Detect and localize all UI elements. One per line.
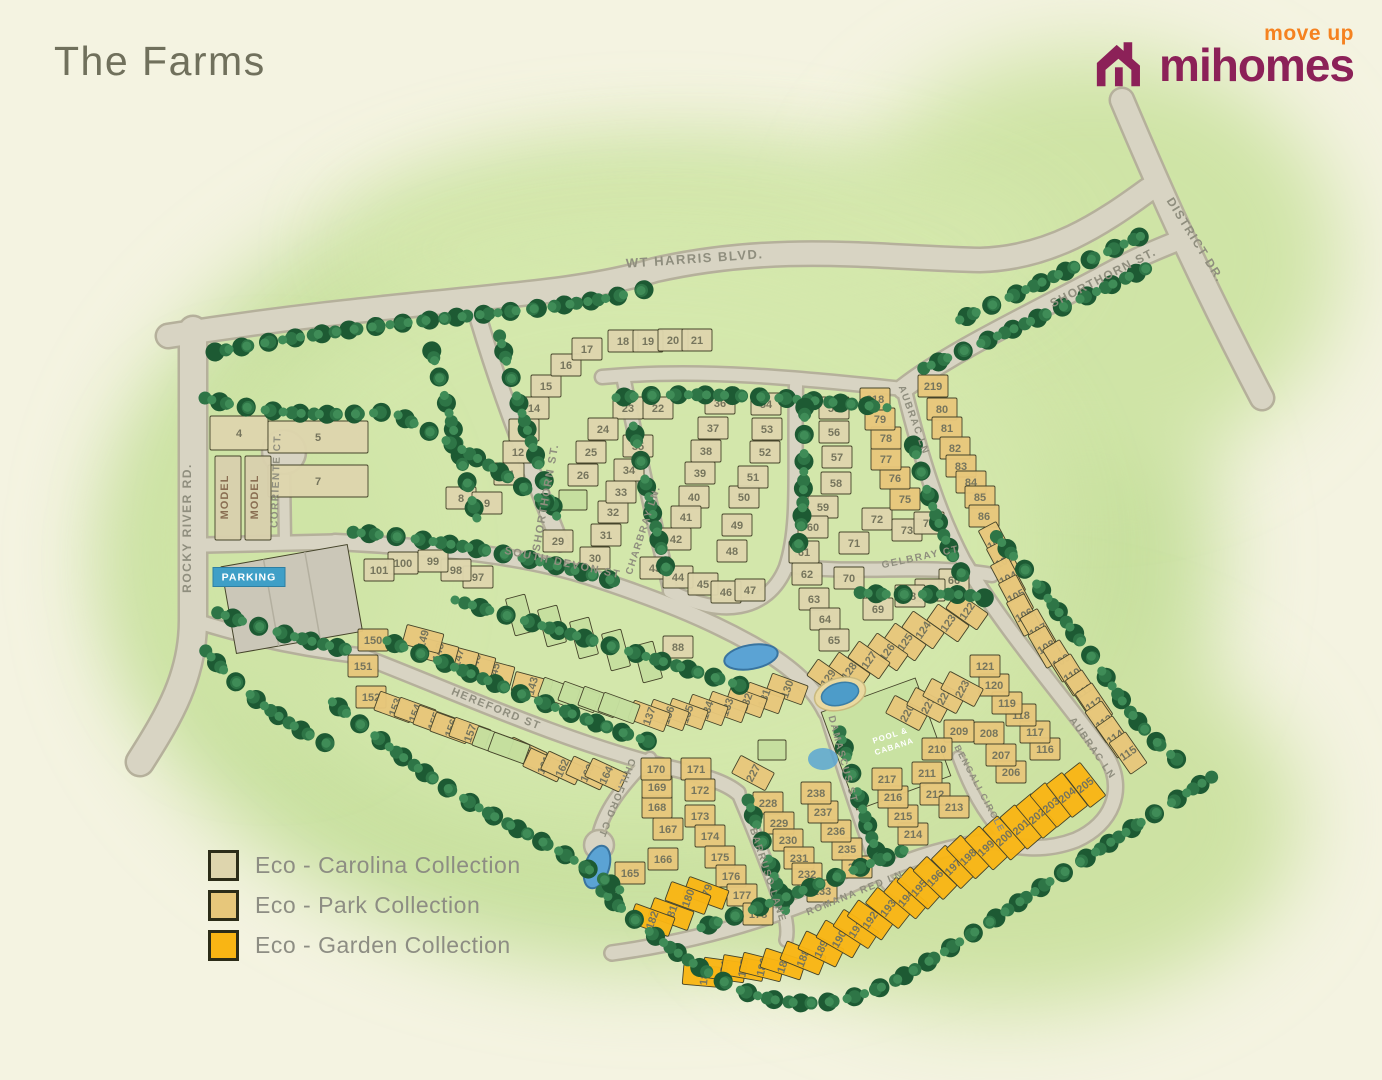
lot-number: 206 <box>1002 767 1020 779</box>
lot-24: 24 <box>588 418 618 440</box>
lot-number: 44 <box>672 572 685 584</box>
lot-number: 117 <box>1026 727 1044 739</box>
lot-number: 25 <box>585 447 597 459</box>
lot-207: 207 <box>986 744 1016 766</box>
lot-210: 210 <box>922 738 952 760</box>
lot-121: 121 <box>970 655 1000 677</box>
lot-number: 76 <box>889 473 901 485</box>
lot-number: 48 <box>726 546 738 558</box>
lot-number: 88 <box>672 642 684 654</box>
lot-number: 172 <box>691 785 709 797</box>
lot-number: 99 <box>427 556 439 568</box>
lot-172: 172 <box>685 779 715 801</box>
lot-number: 40 <box>688 492 700 504</box>
lot-number: 72 <box>871 514 883 526</box>
lot-number: 214 <box>904 829 923 841</box>
lot-211: 211 <box>912 762 942 784</box>
lot-37: 37 <box>698 417 728 439</box>
lot-number: 47 <box>744 585 756 597</box>
lot-number: 51 <box>747 472 759 484</box>
legend-item: Eco - Park Collection <box>208 890 521 921</box>
lot-number: 50 <box>738 492 750 504</box>
lot-number: 33 <box>615 487 627 499</box>
lot-number: 14 <box>528 403 541 415</box>
lot-number: 207 <box>992 750 1010 762</box>
lot-number: 120 <box>985 680 1003 692</box>
lot-number: 9 <box>484 498 490 510</box>
lot-number: 56 <box>828 427 840 439</box>
lot-64: 64 <box>810 608 840 630</box>
lot-number: 15 <box>540 381 552 393</box>
lot-number: 62 <box>801 569 813 581</box>
lot-173: 173 <box>685 805 715 827</box>
legend-swatch <box>208 850 239 881</box>
open-lot <box>559 490 587 510</box>
lot-51: 51 <box>738 466 768 488</box>
lot-40: 40 <box>679 486 709 508</box>
lot-77: 77 <box>871 448 901 470</box>
lot-number: 176 <box>722 871 740 883</box>
lot-99: 99 <box>418 550 448 572</box>
lot-168: 168 <box>642 796 672 818</box>
lot-number: 151 <box>354 661 372 673</box>
lot-number: 85 <box>974 492 986 504</box>
lot-number: 5 <box>315 432 321 444</box>
lot-62: 62 <box>792 563 822 585</box>
lot-70: 70 <box>834 567 864 589</box>
lot-33: 33 <box>606 481 636 503</box>
lot-50: 50 <box>729 486 759 508</box>
legend: Eco - Carolina CollectionEco - Park Coll… <box>208 850 521 961</box>
lot-26: 26 <box>568 464 598 486</box>
lot-number: 77 <box>880 454 892 466</box>
lot-number: 228 <box>759 798 777 810</box>
lot-number: 165 <box>621 868 639 880</box>
lot-number: 53 <box>761 424 773 436</box>
lot-number: 41 <box>680 512 692 524</box>
lot-number: 4 <box>236 428 243 440</box>
lot-217: 217 <box>872 768 902 790</box>
mihomes-logo: move up mihomes <box>1093 22 1354 88</box>
lot-number: 8 <box>458 493 464 505</box>
lot-number: 69 <box>872 604 884 616</box>
lot-number: 80 <box>936 404 948 416</box>
lot-151: 151 <box>348 655 378 677</box>
lot-number: 86 <box>978 511 990 523</box>
lot-number: 31 <box>600 530 612 542</box>
lot-number: 46 <box>720 587 732 599</box>
lot-number: 39 <box>694 468 706 480</box>
lot-number: 17 <box>581 344 593 356</box>
lot-15: 15 <box>531 375 561 397</box>
lot-number: 63 <box>808 594 820 606</box>
lot-number: 20 <box>667 335 679 347</box>
lot-number: 16 <box>560 360 572 372</box>
legend-item: Eco - Carolina Collection <box>208 850 521 881</box>
lot-number: 208 <box>980 728 998 740</box>
lot-58: 58 <box>821 472 851 494</box>
lot-number: 209 <box>950 726 968 738</box>
lot-48: 48 <box>717 540 747 562</box>
lot-170: 170 <box>641 758 671 780</box>
lot-49: 49 <box>722 514 752 536</box>
legend-label: Eco - Garden Collection <box>255 932 511 959</box>
lot-number: 229 <box>770 818 788 830</box>
lot-238: 238 <box>801 782 831 804</box>
lot-number: 168 <box>648 802 666 814</box>
model-label: MODEL <box>219 475 231 520</box>
lot-number: 121 <box>976 661 994 673</box>
lot-53: 53 <box>752 418 782 440</box>
lot-number: 237 <box>814 807 832 819</box>
lot-number: 24 <box>597 424 610 436</box>
lot-number: 175 <box>711 852 729 864</box>
lot-39: 39 <box>685 462 715 484</box>
lot-number: 236 <box>827 826 845 838</box>
lot-number: 49 <box>731 520 743 532</box>
lot-52: 52 <box>750 441 780 463</box>
lot-number: 211 <box>918 768 936 780</box>
lot-number: 52 <box>759 447 771 459</box>
lot-number: 230 <box>779 835 797 847</box>
logo-brand: mihomes <box>1159 42 1354 88</box>
lot-number: 78 <box>880 433 892 445</box>
legend-swatch <box>208 930 239 961</box>
lot-number: 65 <box>828 635 840 647</box>
lot-65: 65 <box>819 629 849 651</box>
lot-number: 217 <box>878 774 896 786</box>
lot-71: 71 <box>839 532 869 554</box>
lot-number: 57 <box>831 452 843 464</box>
lot-17: 17 <box>572 338 602 360</box>
lot-number: 98 <box>450 565 462 577</box>
lot-57: 57 <box>822 446 852 468</box>
lot-number: 45 <box>697 579 709 591</box>
lot-101: 101 <box>364 559 394 581</box>
parking-badge-label: PARKING <box>222 572 277 584</box>
lot-number: 71 <box>848 538 860 550</box>
lot-number: 119 <box>998 698 1016 710</box>
lot-number: 174 <box>701 831 720 843</box>
lot-29: 29 <box>543 530 573 552</box>
lot-63: 63 <box>799 588 829 610</box>
lot-number: 60 <box>807 522 819 534</box>
lot-number: 79 <box>874 414 886 426</box>
lot-213: 213 <box>939 796 969 818</box>
lot-41: 41 <box>671 506 701 528</box>
open-lot <box>758 740 786 760</box>
lot-number: 173 <box>691 811 709 823</box>
lot-number: 59 <box>817 502 829 514</box>
lot-number: 82 <box>949 443 961 455</box>
lot-number: 58 <box>830 478 842 490</box>
lot-number: 42 <box>670 534 682 546</box>
lot-number: 81 <box>941 423 953 435</box>
lot-number: 75 <box>899 494 911 506</box>
lot-number: 170 <box>647 764 665 776</box>
page: The Farms move up mihomes Eco - Carolina… <box>0 0 1382 1080</box>
lot-75: 75 <box>890 488 920 510</box>
lot-31: 31 <box>591 524 621 546</box>
lot-166: 166 <box>648 848 678 870</box>
lot-number: 97 <box>472 572 484 584</box>
lot-number: 219 <box>924 381 942 393</box>
lot-21: 21 <box>682 329 712 351</box>
lot-number: 19 <box>642 336 654 348</box>
splash-pool <box>808 748 838 770</box>
lot-number: 210 <box>928 744 946 756</box>
mihomes-house-icon <box>1093 38 1149 88</box>
lot-7: 7 <box>268 465 368 497</box>
lot-171: 171 <box>681 758 711 780</box>
lot-number: 238 <box>807 788 825 800</box>
lot-number: 216 <box>884 792 902 804</box>
lot-number: 37 <box>707 423 719 435</box>
lot-number: 12 <box>512 447 524 459</box>
lot-167: 167 <box>653 818 683 840</box>
lot-38: 38 <box>691 440 721 462</box>
lot-number: 235 <box>838 844 856 856</box>
lot-number: 18 <box>617 336 629 348</box>
lot-number: 177 <box>733 890 751 902</box>
lot-number: 101 <box>370 565 388 577</box>
lot-number: 169 <box>648 782 666 794</box>
lot-number: 166 <box>654 854 672 866</box>
lot-number: 7 <box>315 476 321 488</box>
lot-number: 167 <box>659 824 677 836</box>
lot-number: 29 <box>552 536 564 548</box>
lot-56: 56 <box>819 421 849 443</box>
lot-number: 32 <box>607 507 619 519</box>
lot-219: 219 <box>918 375 948 397</box>
lot-number: 64 <box>819 614 832 626</box>
lot-208: 208 <box>974 722 1004 744</box>
model-label: MODEL <box>249 475 261 520</box>
lot-number: 116 <box>1036 744 1054 756</box>
lot-47: 47 <box>735 579 765 601</box>
legend-swatch <box>208 890 239 921</box>
lot-number: 70 <box>843 573 855 585</box>
lot-number: 26 <box>577 470 589 482</box>
lot-59: 59 <box>808 496 838 518</box>
lot-25: 25 <box>576 441 606 463</box>
lot-number: 100 <box>394 558 412 570</box>
lot-81: 81 <box>932 417 962 439</box>
legend-item: Eco - Garden Collection <box>208 930 521 961</box>
lot-number: 150 <box>364 635 382 647</box>
lot-number: 22 <box>652 403 664 415</box>
legend-label: Eco - Carolina Collection <box>255 852 521 879</box>
lot-number: 73 <box>901 525 913 537</box>
lot-number: 38 <box>700 446 712 458</box>
page-title: The Farms <box>54 38 266 85</box>
lot-number: 215 <box>894 811 912 823</box>
lot-32: 32 <box>598 501 628 523</box>
street-label: ROCKY RIVER RD. <box>180 463 194 593</box>
lot-174: 174 <box>695 825 725 847</box>
lot-number: 213 <box>945 802 963 814</box>
lot-4: 4 <box>210 416 268 450</box>
lot-number: 171 <box>687 764 705 776</box>
legend-label: Eco - Park Collection <box>255 892 480 919</box>
lot-number: 21 <box>691 335 703 347</box>
lot-72: 72 <box>862 508 892 530</box>
